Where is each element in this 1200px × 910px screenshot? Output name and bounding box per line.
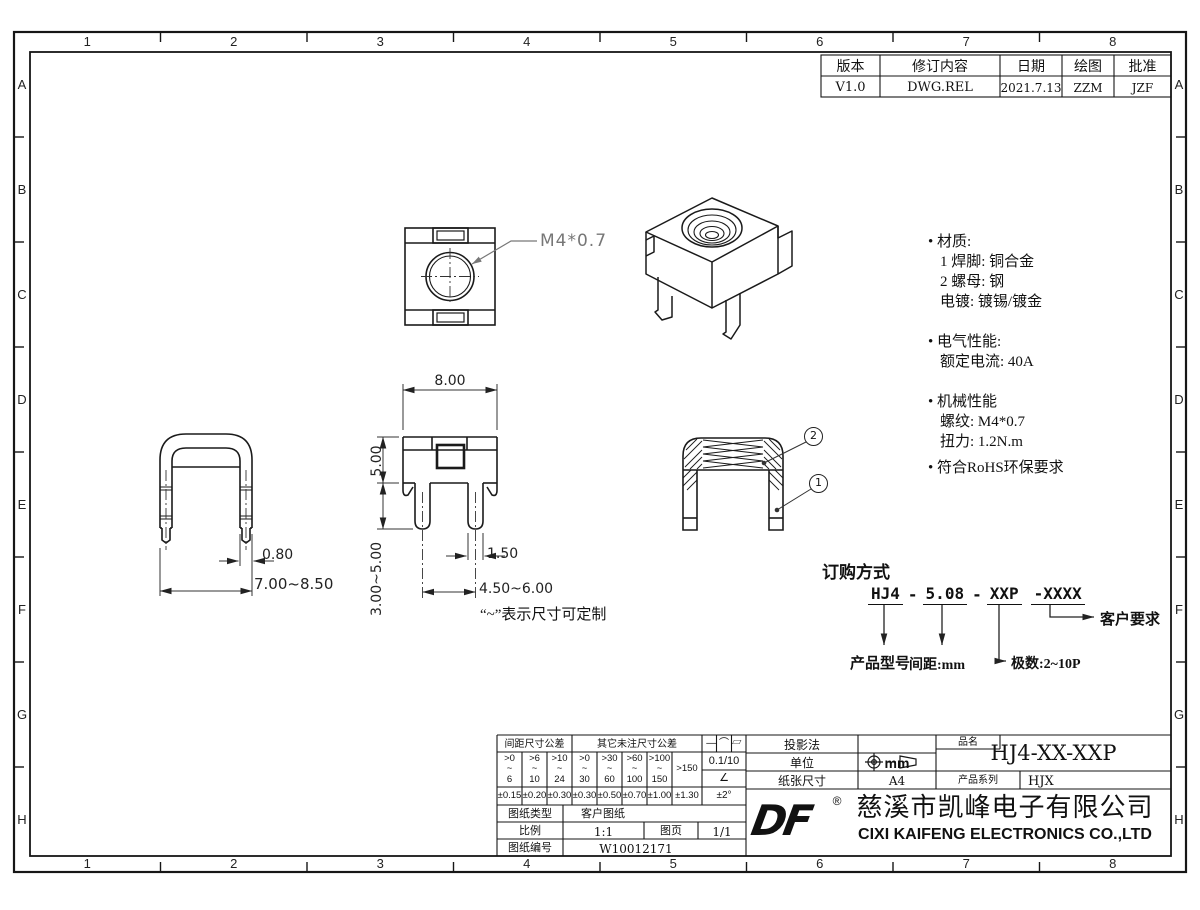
zone-label-bottom-1: 1 <box>14 856 161 871</box>
section-view <box>683 438 783 530</box>
ordering-code: HJ4 - 5.08 - XXP -XXXX <box>868 584 1085 605</box>
ordering-label-pitch: 间距:mm <box>909 654 965 674</box>
zone-label-bottom-5: 5 <box>600 856 747 871</box>
tol-range-tilde-5: ~ <box>622 764 647 774</box>
tol-range-bot-1: 10 <box>522 775 547 785</box>
zone-label-top-7: 7 <box>893 34 1040 49</box>
zone-label-bottom-6: 6 <box>747 856 894 871</box>
tb-paper-label: 纸张尺寸 <box>746 775 858 788</box>
tb-type-label: 图纸类型 <box>497 809 563 821</box>
zone-label-right-F: F <box>1172 557 1186 662</box>
tb-series-label: 产品系列 <box>936 776 1020 787</box>
zone-label-right-C: C <box>1172 242 1186 347</box>
tb-type-value: 客户图纸 <box>563 809 643 821</box>
company-logo: DF <box>748 800 813 842</box>
tb-name-value: HJ4-XX-XXP <box>936 742 1171 764</box>
zone-label-left-B: B <box>14 137 30 242</box>
rev-header-date: 日期 <box>1000 59 1062 74</box>
zone-label-top-8: 8 <box>1040 34 1187 49</box>
ordering-label-model: 产品型号 <box>850 652 910 673</box>
rev-header-version: 版本 <box>821 59 880 74</box>
zone-label-left-H: H <box>14 767 30 872</box>
rev-content: DWG.REL <box>880 81 1000 95</box>
zone-label-right-G: G <box>1172 662 1186 767</box>
dim-pin-width-front: 1.50 <box>487 546 518 562</box>
tol-pitch-header: 间距尺寸公差 <box>497 740 572 751</box>
ordering-code-poles: XXP <box>987 584 1022 605</box>
rev-header-drawn: 绘图 <box>1062 59 1114 74</box>
zone-label-right-D: D <box>1172 347 1186 452</box>
rev-date: 2021.7.13 <box>1000 82 1062 95</box>
zone-label-top-2: 2 <box>161 34 308 49</box>
tol-range-tilde-2: ~ <box>547 764 572 774</box>
dim-side-width: 7.00~8.50 <box>254 575 333 593</box>
zone-label-left-C: C <box>14 242 30 347</box>
tol-angle-symbol: ∠ <box>702 773 746 785</box>
tol-range-tilde-1: ~ <box>522 764 547 774</box>
tol-range-bot-0: 6 <box>497 775 522 785</box>
tol-range-bot-2: 24 <box>547 775 572 785</box>
zone-label-top-1: 1 <box>14 34 161 49</box>
tol-flatness: 0.1/10 <box>702 756 746 768</box>
side-view <box>160 434 252 543</box>
tb-scale-value: 1:1 <box>563 826 644 839</box>
rev-approved: JZF <box>1114 82 1171 95</box>
ordering-title: 订购方式 <box>822 558 890 583</box>
rev-drawn: ZZM <box>1062 82 1114 95</box>
tol-value-7: ±1.30 <box>672 791 702 801</box>
tol-value-1: ±0.20 <box>522 791 547 801</box>
dim-custom-note: “~”表示尺寸可定制 <box>480 603 606 624</box>
tol-range-tilde-6: ~ <box>647 764 672 774</box>
rev-header-content: 修订内容 <box>880 59 1000 74</box>
side-view-centerlines <box>166 470 246 550</box>
zone-label-top-5: 5 <box>600 34 747 49</box>
tb-unit-value: mm <box>858 756 936 771</box>
note-material-title: • 材质: <box>928 230 971 251</box>
tol-range-bot-6: 150 <box>647 775 672 785</box>
note-rohs: • 符合RoHS环保要求 <box>928 456 1064 477</box>
tb-number-value: W10012171 <box>563 843 709 856</box>
front-view <box>403 437 497 529</box>
tol-value-3: ±0.30 <box>572 791 597 801</box>
note-material-3: 电镀: 镀锡/镀金 <box>940 290 1042 311</box>
ordering-code-sep2: - <box>972 585 982 605</box>
tol-other-header: 其它未注尺寸公差 <box>572 740 702 751</box>
company-name-en: CIXI KAIFENG ELECTRONICS CO.,LTD <box>840 827 1170 844</box>
zone-label-right-H: H <box>1172 767 1186 872</box>
tol-value-2: ±0.30 <box>547 791 572 801</box>
note-electrical-1: 额定电流: 40A <box>940 350 1034 371</box>
zone-label-right-A: A <box>1172 32 1186 137</box>
company-name-cn: 慈溪市凯峰电子有限公司 <box>840 794 1170 821</box>
tol-value-6: ±1.00 <box>647 791 672 801</box>
zone-label-left-F: F <box>14 557 30 662</box>
note-mechanical-2: 扭力: 1.2N.m <box>940 430 1023 451</box>
tol-range-bot-3: 30 <box>572 775 597 785</box>
dim-front-leg: 3.00~5.00 <box>369 537 385 621</box>
zone-label-bottom-8: 8 <box>1040 856 1187 871</box>
ordering-label-customer: 客户要求 <box>1100 608 1160 629</box>
tol-range-tilde-0: ~ <box>497 764 522 774</box>
tb-sheet-label: 图页 <box>644 826 698 838</box>
tol-value-4: ±0.50 <box>597 791 622 801</box>
zone-label-left-D: D <box>14 347 30 452</box>
ordering-code-model: HJ4 <box>868 584 903 605</box>
note-material-2: 2 螺母: 钢 <box>940 270 1004 291</box>
balloon-1: 1 <box>809 474 828 493</box>
zone-label-left-G: G <box>14 662 30 767</box>
balloon-2: 2 <box>804 427 823 446</box>
tol-range-tilde-4: ~ <box>597 764 622 774</box>
thread-callout-leader <box>472 241 537 264</box>
dim-front-height: 5.00 <box>369 438 385 484</box>
tol-over-150: >150 <box>672 764 702 774</box>
zone-label-right-E: E <box>1172 452 1186 557</box>
note-material-1: 1 焊脚: 铜合金 <box>940 250 1034 271</box>
tol-range-bot-4: 60 <box>597 775 622 785</box>
tb-scale-label: 比例 <box>497 826 563 838</box>
zone-label-top-3: 3 <box>307 34 454 49</box>
note-mechanical-1: 螺纹: M4*0.7 <box>940 410 1025 431</box>
tol-range-tilde-3: ~ <box>572 764 597 774</box>
zone-label-bottom-4: 4 <box>454 856 601 871</box>
zone-label-left-A: A <box>14 32 30 137</box>
tb-number-label: 图纸编号 <box>497 843 563 855</box>
tb-paper-value: A4 <box>858 775 936 788</box>
zone-label-bottom-3: 3 <box>307 856 454 871</box>
dimension-lines <box>160 384 505 596</box>
zone-label-right-B: B <box>1172 137 1186 242</box>
rev-version: V1.0 <box>821 81 880 95</box>
zone-label-top-6: 6 <box>747 34 894 49</box>
ordering-code-sep1: - <box>908 585 918 605</box>
ordering-label-poles: 极数:2~10P <box>1011 653 1081 673</box>
dim-pin-thickness: 0.80 <box>262 547 293 563</box>
tb-unit-label: 单位 <box>746 757 858 770</box>
zone-label-top-4: 4 <box>454 34 601 49</box>
tb-projection-label: 投影法 <box>746 739 858 752</box>
tol-value-0: ±0.15 <box>497 791 522 801</box>
rev-header-approved: 批准 <box>1114 59 1171 74</box>
tb-sheet-value: 1/1 <box>698 826 746 839</box>
isometric-view <box>646 198 792 339</box>
zone-label-bottom-7: 7 <box>893 856 1040 871</box>
ordering-code-custom: -XXXX <box>1031 584 1085 605</box>
zone-label-left-E: E <box>14 452 30 557</box>
drawing-sheet: 版本 修订内容 日期 绘图 批准 V1.0 DWG.REL 2021.7.13 … <box>0 0 1200 910</box>
dim-front-width: 8.00 <box>403 373 497 389</box>
dim-pin-pitch: 4.50~6.00 <box>479 581 553 597</box>
tol-angle-value: ±2° <box>702 791 746 802</box>
tol-value-5: ±0.70 <box>622 791 647 801</box>
tb-series-value: HJX <box>1028 775 1128 789</box>
tol-range-bot-5: 100 <box>622 775 647 785</box>
section-thread <box>703 440 763 468</box>
tol-geo-symbols: — ⌒ ▱ <box>702 739 746 750</box>
note-mechanical-title: • 机械性能 <box>928 390 997 411</box>
note-electrical-title: • 电气性能: <box>928 330 1001 351</box>
dim-thread-callout: M4*0.7 <box>540 231 607 251</box>
ordering-code-pitch: 5.08 <box>923 584 968 605</box>
zone-label-bottom-2: 2 <box>161 856 308 871</box>
